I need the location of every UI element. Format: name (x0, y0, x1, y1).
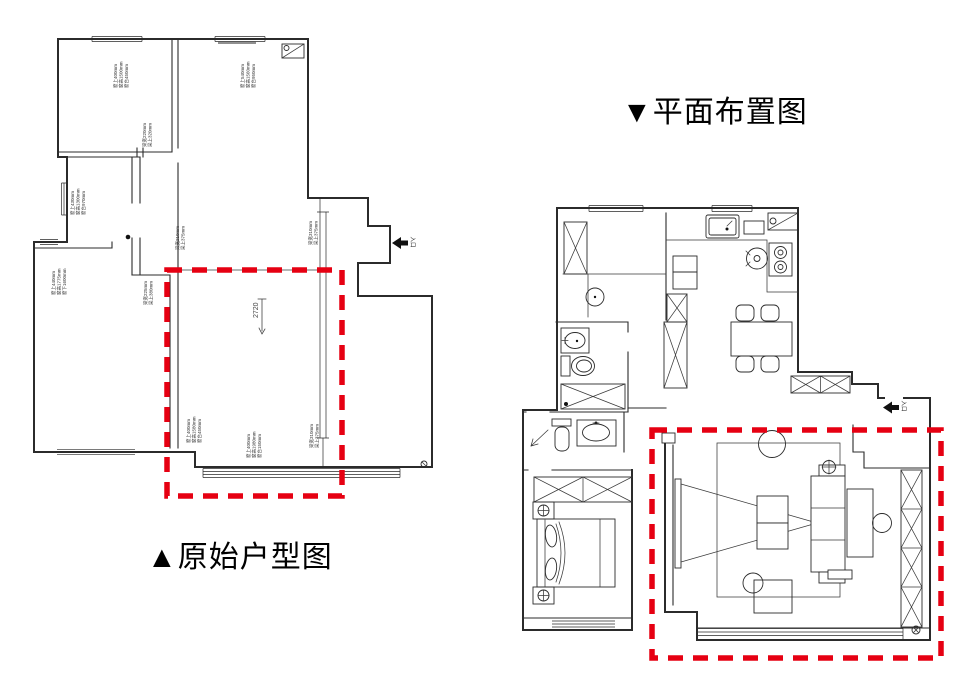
highlight-box-layout (652, 430, 941, 658)
wall-label-smudge (218, 41, 256, 44)
entrance-arrow-icon (392, 237, 408, 249)
entrance-marker: 入口 (883, 401, 907, 414)
entrance-label: 入口 (900, 401, 907, 412)
ceiling-lamp-icon (822, 460, 836, 474)
wash-basin (586, 288, 604, 306)
wall-column (662, 433, 675, 443)
dining-chairs (736, 305, 779, 372)
bed (537, 519, 615, 587)
dining-table (731, 322, 792, 356)
window-lowleft-jog (40, 240, 58, 245)
interior-walls (523, 213, 930, 628)
svg-text:窗台150mm: 窗台150mm (256, 434, 263, 458)
side-table (873, 514, 892, 533)
coffee-table (743, 573, 792, 613)
dimension-2720-label: 2720 (253, 302, 260, 318)
projector-screen (675, 479, 681, 568)
svg-text:梁上380mm: 梁上380mm (148, 281, 155, 305)
toilet-2 (552, 419, 571, 451)
plan-annotations: 窗上400mm 窗高1500mm 窗台450mm 梁宽220mm 梁上320mm… (50, 61, 321, 458)
living-cabinet (901, 470, 922, 627)
outer-wall (34, 39, 432, 467)
utility-cabinet (564, 222, 587, 274)
projection-cone (681, 484, 817, 562)
kitchen-sink (706, 215, 739, 238)
layout-plan-title: ▼平面布置图 (622, 96, 808, 129)
cutting-board (744, 221, 764, 234)
layout-plan: 入口 ▼平面布置图 (523, 96, 941, 658)
window-top-2 (712, 206, 752, 212)
toilet (561, 356, 595, 376)
window-living-bottom (203, 469, 400, 478)
window-living (697, 629, 903, 641)
svg-text:窗台950mm: 窗台950mm (250, 64, 257, 88)
wok (746, 248, 768, 269)
window-top-1 (589, 206, 643, 212)
svg-text:梁上320mm: 梁上320mm (147, 123, 154, 147)
door-swing-arrow (531, 430, 548, 446)
entrance-label: 入口 (409, 237, 416, 248)
svg-text:窗下1600mm: 窗下1600mm (61, 268, 68, 295)
window-top-right (215, 37, 265, 42)
tall-cabinet-1 (667, 294, 687, 322)
bedroom-wardrobe (534, 477, 632, 502)
entrance-marker: 入口 (392, 237, 416, 250)
nightstand-2 (533, 587, 554, 604)
window-bedroom (552, 621, 615, 627)
tall-cabinet-2 (664, 322, 687, 388)
stove (769, 243, 792, 276)
svg-text:梁上375mm: 梁上375mm (313, 221, 320, 245)
ottomans (757, 496, 788, 549)
sofa (811, 465, 873, 583)
floorplan-comparison-canvas: 2720 入口 窗上400mm 窗高1500mm 窗台450mm 梁宽220mm… (0, 0, 956, 700)
bathroom-sink (561, 328, 589, 353)
floorplans-svg: 2720 入口 窗上400mm 窗高1500mm 窗台450mm 梁宽220mm… (0, 0, 956, 700)
column-dot (126, 235, 131, 240)
floor-lamp (759, 431, 786, 458)
nightstand-1 (533, 502, 554, 519)
shower (561, 384, 625, 409)
entry-cabinet (791, 376, 850, 393)
kitchen-corner-unit (768, 213, 798, 230)
window-lowleft-bottom (57, 450, 135, 455)
window-mid-left (62, 183, 67, 215)
sink-2 (577, 420, 616, 446)
dimension-2720: 2720 (253, 299, 266, 334)
fridge (673, 256, 697, 289)
window-top-left (92, 37, 142, 42)
svg-text:梁上375mm: 梁上375mm (180, 226, 187, 250)
svg-text:窗台970mm: 窗台970mm (80, 191, 87, 215)
original-plan-title: ▲原始户型图 (147, 541, 333, 574)
entrance-arrow-icon (883, 402, 899, 414)
original-plan: 2720 入口 窗上400mm 窗高1500mm 窗台450mm 梁宽220mm… (34, 37, 432, 575)
outer-wall (523, 208, 930, 640)
svg-text:窗台450mm: 窗台450mm (123, 64, 130, 88)
svg-text:梁上375mm: 梁上375mm (314, 424, 321, 448)
svg-text:窗台450mm: 窗台450mm (196, 419, 203, 443)
flue-fixture (282, 44, 304, 58)
